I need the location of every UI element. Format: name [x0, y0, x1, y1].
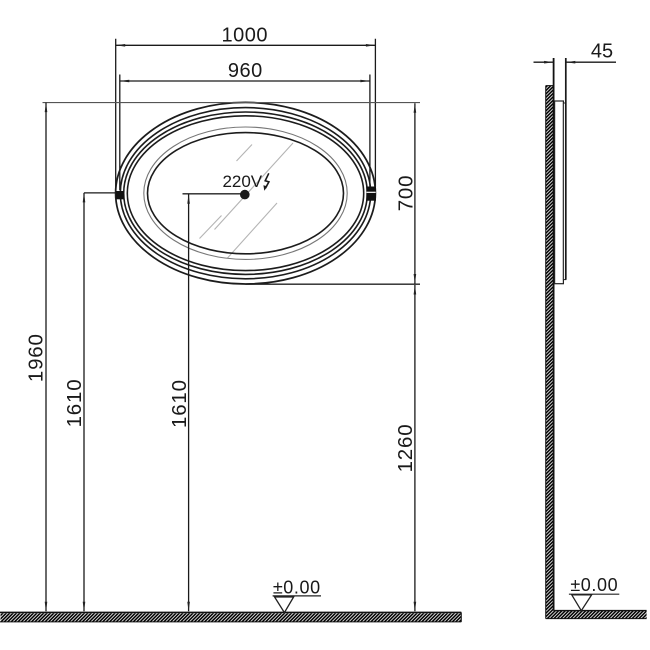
svg-text:1610: 1610	[168, 379, 191, 428]
svg-text:700: 700	[395, 175, 418, 212]
svg-text:1260: 1260	[394, 424, 417, 473]
svg-text:45: 45	[591, 41, 613, 63]
svg-text:1960: 1960	[25, 333, 48, 382]
svg-text:960: 960	[228, 60, 263, 82]
svg-text:±0.00: ±0.00	[273, 578, 321, 598]
svg-text:1000: 1000	[222, 25, 269, 47]
svg-text:1610: 1610	[63, 379, 86, 428]
svg-text:±0.00: ±0.00	[570, 575, 618, 595]
svg-text:220V: 220V	[222, 172, 262, 191]
